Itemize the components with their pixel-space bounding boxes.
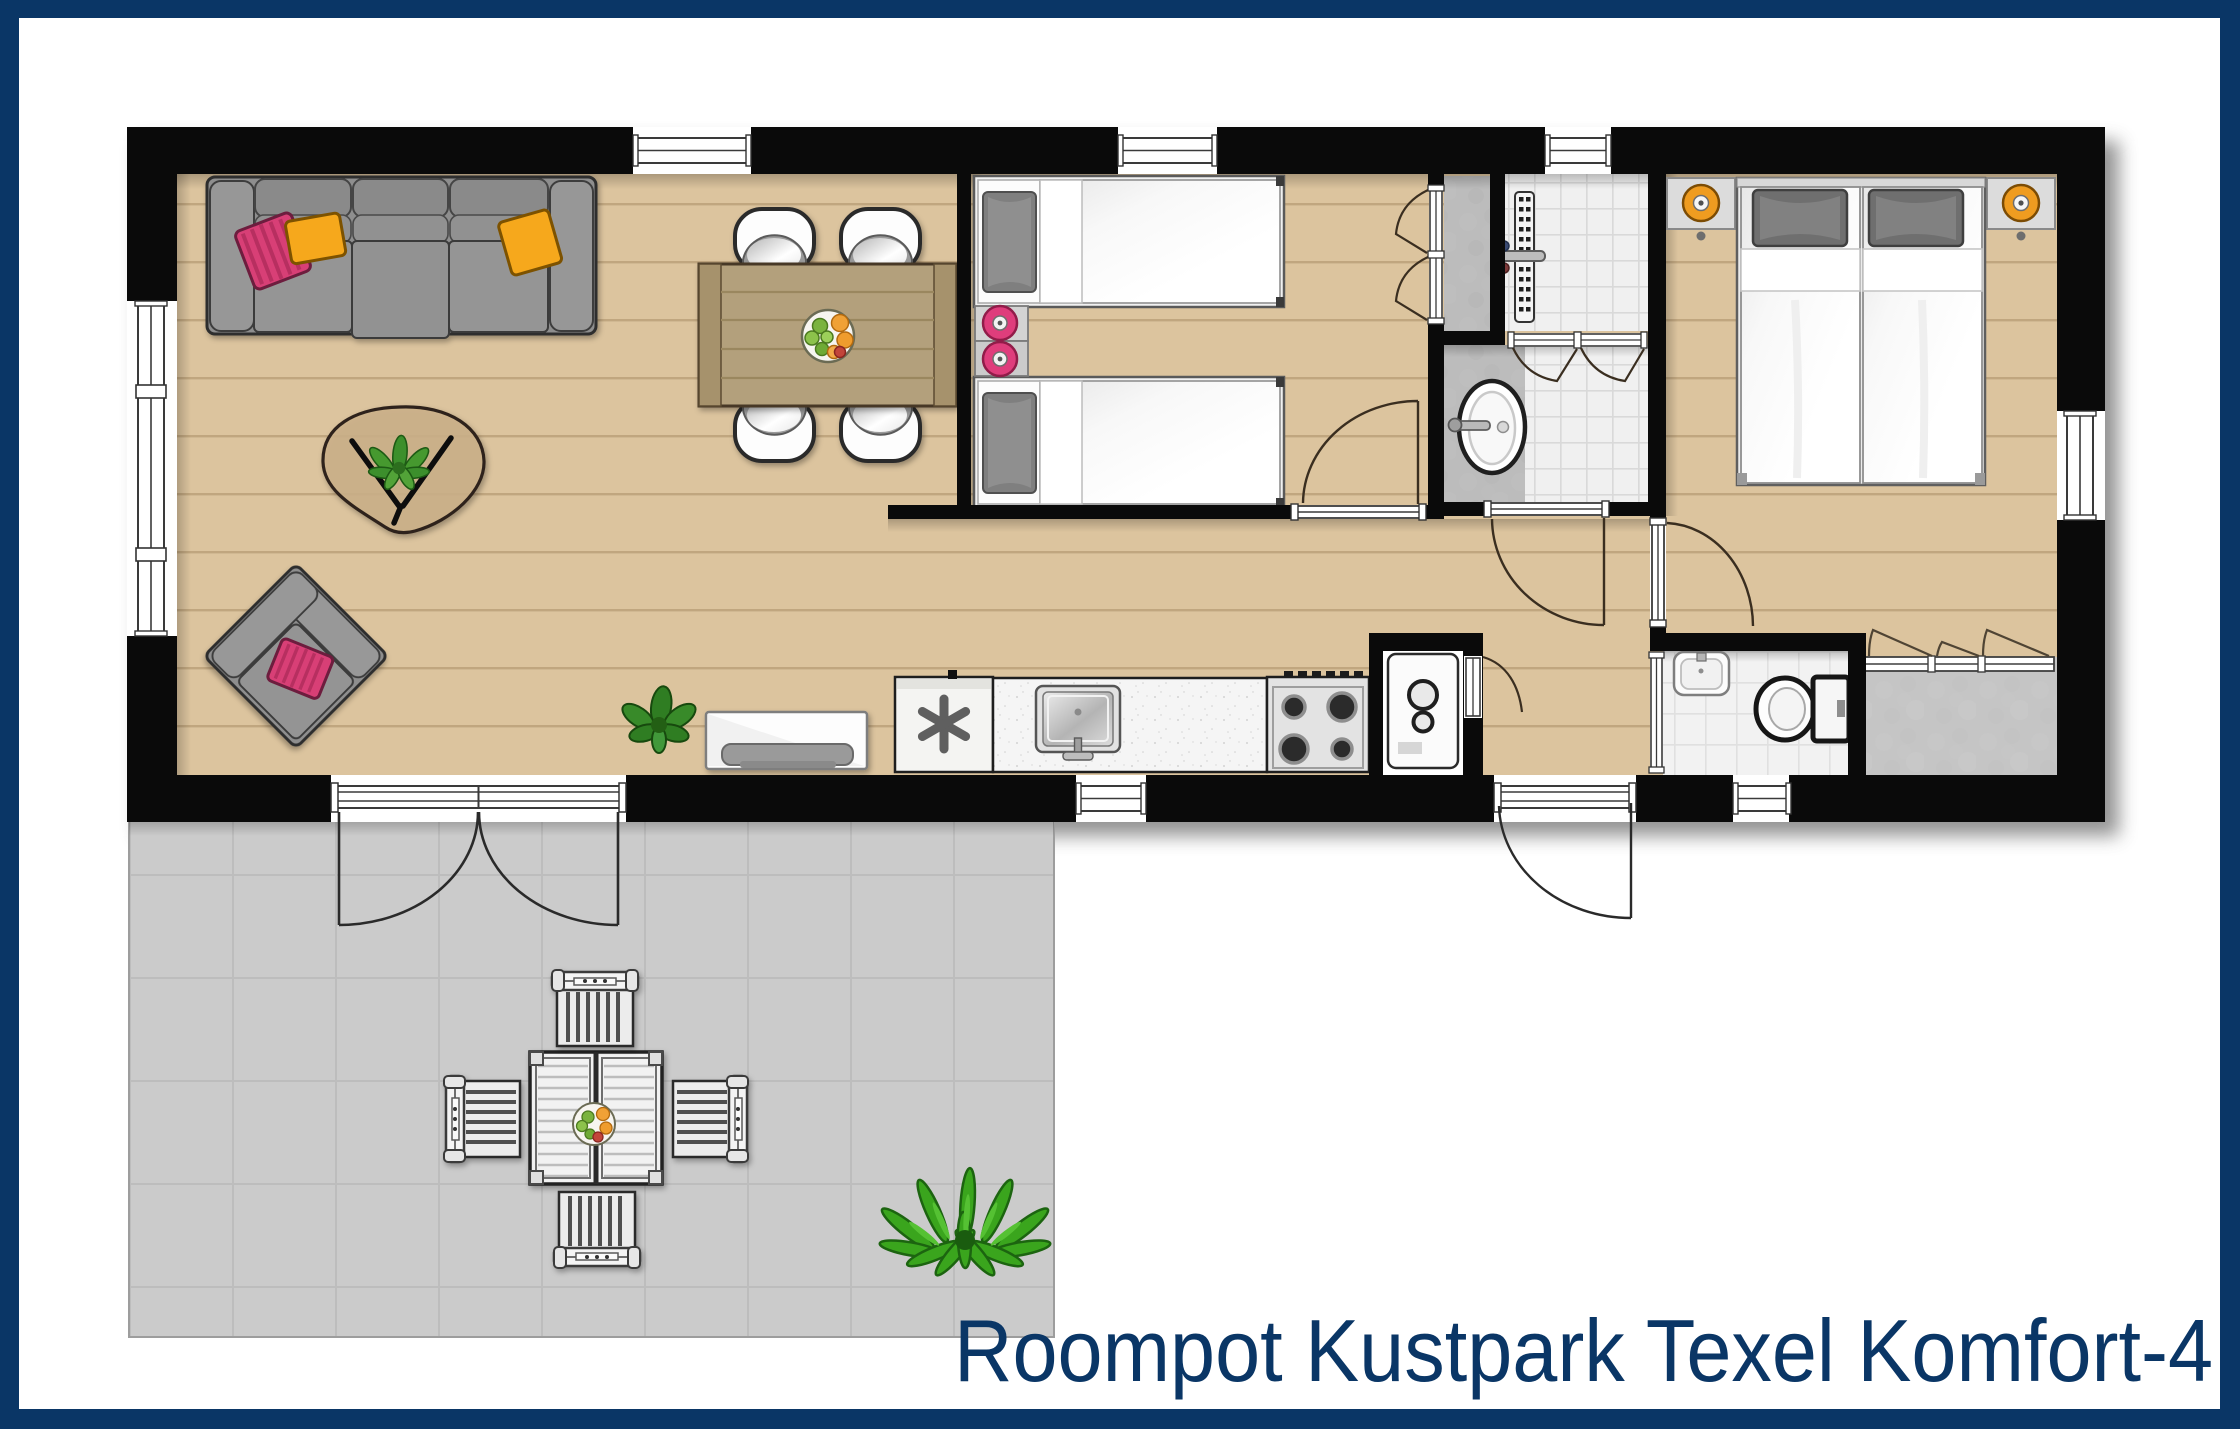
svg-text:Roompot Kustpark Texel Komfort: Roompot Kustpark Texel Komfort-4 [954,1301,2213,1400]
